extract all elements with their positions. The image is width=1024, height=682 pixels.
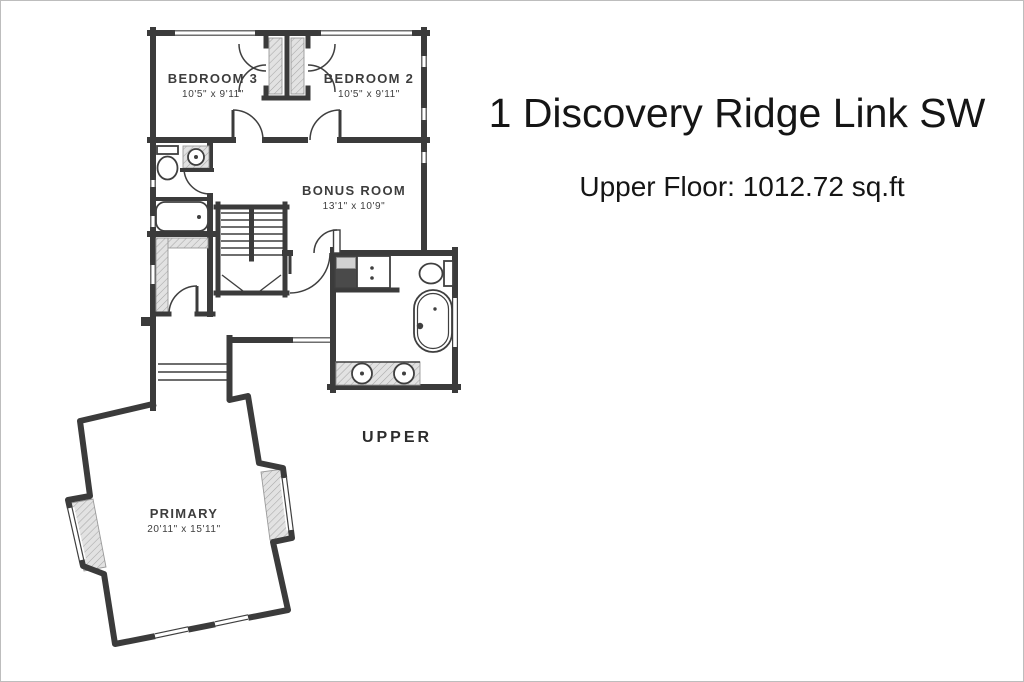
window [290,338,332,342]
door-leaf [334,230,341,253]
bedroom-doors [233,110,340,140]
shower-shelf [337,258,356,269]
landing-hall [158,253,332,380]
floor-area-subtitle: Upper Floor: 1012.72 sq.ft [579,171,905,202]
linen-cabinet [357,256,390,288]
primary-dims: 20'11" x 15'11" [147,524,220,535]
toilet-bowl [158,157,178,180]
closet-shelf [156,238,168,312]
address-title: 1 Discovery Ridge Link SW [489,90,986,136]
floor-label: UPPER [362,429,432,446]
railing [158,364,230,380]
door-swing [290,253,330,293]
bedroom2-label: BEDROOM 2 [324,71,414,86]
primary-label: PRIMARY [150,506,219,521]
ensuite-bathroom [314,143,458,390]
freestanding-tub [414,290,452,352]
door-swing [169,286,197,314]
title-block: 1 Discovery Ridge Link SW Upper Floor: 1… [489,90,986,202]
floorplan-canvas: BEDROOM 3 10'5" x 9'11" BEDROOM 2 10'5" … [0,0,1024,682]
toilet-tank [157,146,178,154]
window [453,295,458,350]
door-swing [310,110,340,140]
walk-in-closet [150,234,213,314]
bedroom-closets [239,33,335,98]
bedroom3-dims: 10'5" x 9'11" [182,89,244,100]
bonus-room-label: BONUS ROOM [302,183,406,198]
bonus-room-dims: 13'1" x 10'9" [323,201,386,212]
toilet-tank [444,261,453,286]
bedroom3-label: BEDROOM 3 [168,71,258,86]
tub-faucet [417,323,423,329]
closet-shelf [291,38,304,94]
bedroom2-dims: 10'5" x 9'11" [338,89,400,100]
left-exterior-wall [141,143,156,408]
staircase [216,204,287,295]
floorplan-page: BEDROOM 3 10'5" x 9'11" BEDROOM 2 10'5" … [0,0,1024,682]
toilet-bowl [420,264,443,284]
wall-jog [141,317,156,326]
door-swing [233,110,263,140]
closet-shelf [269,38,282,94]
